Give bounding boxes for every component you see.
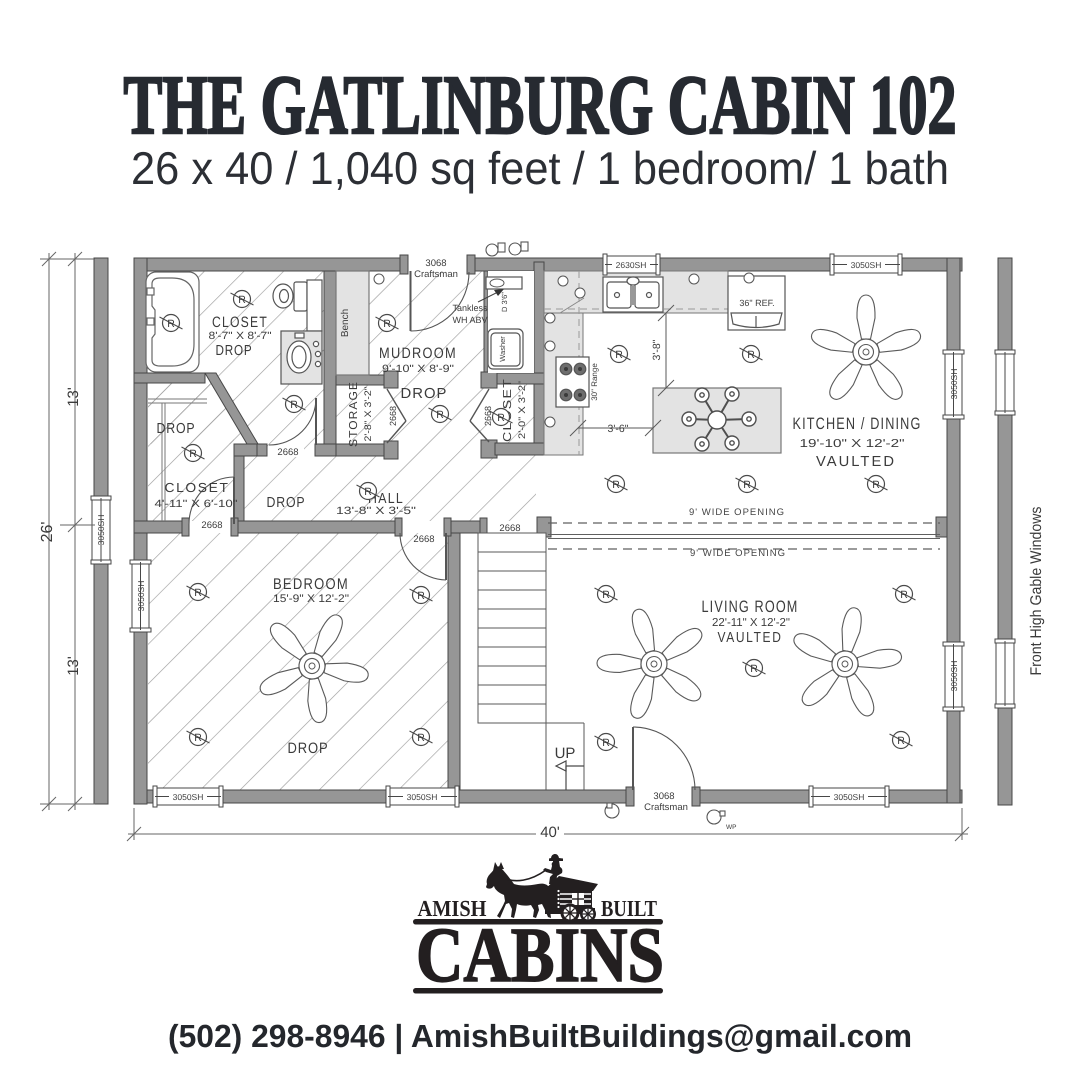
svg-text:13': 13' [65,656,82,676]
svg-text:THE GATLINBURG CABIN 102: THE GATLINBURG CABIN 102 [124,59,957,152]
svg-text:26 x 40 / 1,040 sq feet / 1 be: 26 x 40 / 1,040 sq feet / 1 bedroom/ 1 b… [131,142,949,194]
svg-text:CABINS: CABINS [416,911,664,998]
svg-text:3068: 3068 [653,791,674,802]
svg-text:MUDROOM: MUDROOM [379,345,457,362]
svg-text:2'-0" X 3'-2": 2'-0" X 3'-2" [517,381,528,439]
svg-text:30" Range: 30" Range [590,363,599,401]
svg-text:3050SH: 3050SH [173,792,204,802]
svg-text:DROP: DROP [157,421,196,437]
svg-text:2668: 2668 [483,406,493,426]
svg-text:26': 26' [39,522,56,543]
svg-text:3050SH: 3050SH [96,515,106,546]
svg-text:3050SH: 3050SH [851,260,882,270]
svg-text:CLOSET: CLOSET [165,480,230,495]
svg-text:22'-11" X 12'-2": 22'-11" X 12'-2" [712,617,790,629]
svg-text:Bench: Bench [340,309,351,337]
svg-text:BEDROOM: BEDROOM [273,576,349,593]
svg-text:Craftsman: Craftsman [644,802,688,813]
svg-text:KITCHEN / DINING: KITCHEN / DINING [793,415,922,433]
svg-text:3'-8": 3'-8" [651,339,663,360]
svg-text:13'-8" X 3'-5": 13'-8" X 3'-5" [336,505,416,517]
svg-text:VAULTED: VAULTED [816,454,896,470]
svg-text:Front High Gable Windows: Front High Gable Windows [1028,506,1045,675]
svg-text:Washer: Washer [498,336,507,362]
svg-text:19'-10" X 12'-2": 19'-10" X 12'-2" [800,438,905,450]
svg-text:Craftsman: Craftsman [414,269,458,280]
svg-text:36" REF.: 36" REF. [739,298,774,308]
svg-text:3068: 3068 [425,258,446,269]
svg-text:2668: 2668 [413,534,434,545]
svg-text:(502) 298-8946 | AmishBuiltBui: (502) 298-8946 | AmishBuiltBuildings@gma… [168,1018,912,1055]
svg-text:2630SH: 2630SH [616,260,647,270]
svg-text:9'-10" X 8'-9": 9'-10" X 8'-9" [382,363,454,375]
svg-text:DROP: DROP [288,740,329,757]
svg-text:WP: WP [726,824,736,831]
svg-text:3050SH: 3050SH [949,661,959,692]
svg-text:2'-8" X 3'-2": 2'-8" X 3'-2" [363,387,374,442]
svg-text:WH ABV: WH ABV [452,315,487,325]
svg-text:DROP: DROP [267,495,306,511]
svg-text:UP: UP [555,745,576,762]
svg-text:LIVING ROOM: LIVING ROOM [702,598,799,616]
svg-text:3050SH: 3050SH [834,792,865,802]
svg-text:DROP: DROP [401,386,448,402]
svg-text:4'-11" X 6'-10": 4'-11" X 6'-10" [155,498,238,510]
svg-text:2668: 2668 [277,447,298,458]
svg-text:2668: 2668 [499,523,520,534]
svg-text:40': 40' [540,824,560,841]
svg-text:15'-9" X 12'-2": 15'-9" X 12'-2" [273,593,349,605]
svg-text:3'-6": 3'-6" [608,423,629,435]
svg-text:13': 13' [65,387,82,407]
svg-text:9' WIDE OPENING: 9' WIDE OPENING [690,548,786,559]
svg-text:CLOSET: CLOSET [212,314,268,331]
svg-text:3050SH: 3050SH [136,581,146,612]
svg-text:2668: 2668 [388,406,398,426]
svg-text:DROP: DROP [216,343,253,359]
svg-text:8'-7" X 8'-7": 8'-7" X 8'-7" [209,330,272,342]
svg-text:STORAGE: STORAGE [348,381,360,447]
svg-text:3050SH: 3050SH [407,792,438,802]
svg-text:3050SH: 3050SH [949,369,959,400]
svg-text:Tankless: Tankless [452,303,488,313]
svg-text:9' WIDE OPENING: 9' WIDE OPENING [689,507,785,518]
svg-text:2668: 2668 [201,520,222,531]
svg-text:VAULTED: VAULTED [718,630,783,646]
svg-text:D 3'6": D 3'6" [500,292,509,312]
